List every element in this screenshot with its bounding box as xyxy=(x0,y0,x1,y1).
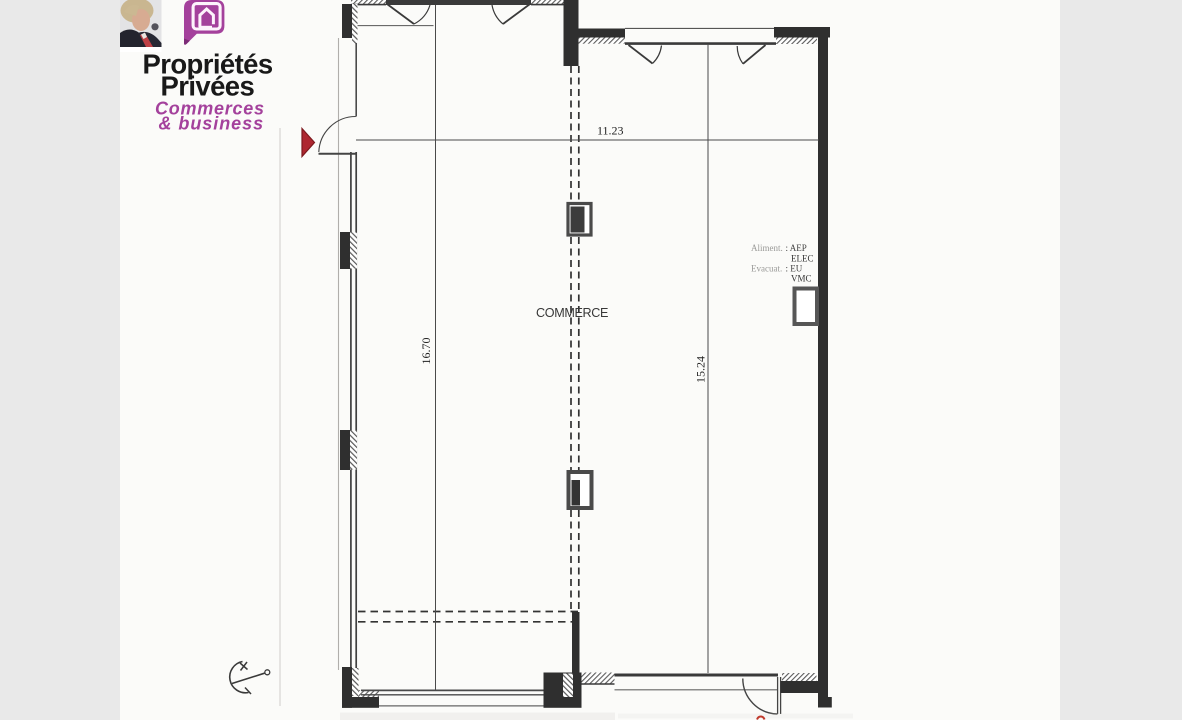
svg-text:15.24: 15.24 xyxy=(694,356,708,383)
svg-text:: EU: : EU xyxy=(786,264,803,274)
svg-text:Aliment.: Aliment. xyxy=(751,243,783,253)
svg-text:ELEC: ELEC xyxy=(791,254,814,264)
svg-text:VMC: VMC xyxy=(791,274,812,284)
svg-text:COMMERCE: COMMERCE xyxy=(536,306,608,320)
svg-text:11.23: 11.23 xyxy=(597,124,624,138)
svg-text:Evacuat.: Evacuat. xyxy=(751,264,782,274)
svg-text:& business: & business xyxy=(159,114,265,134)
svg-text:Privées: Privées xyxy=(161,71,255,102)
svg-text:: AEP: : AEP xyxy=(786,243,807,253)
svg-text:16.70: 16.70 xyxy=(419,338,433,365)
